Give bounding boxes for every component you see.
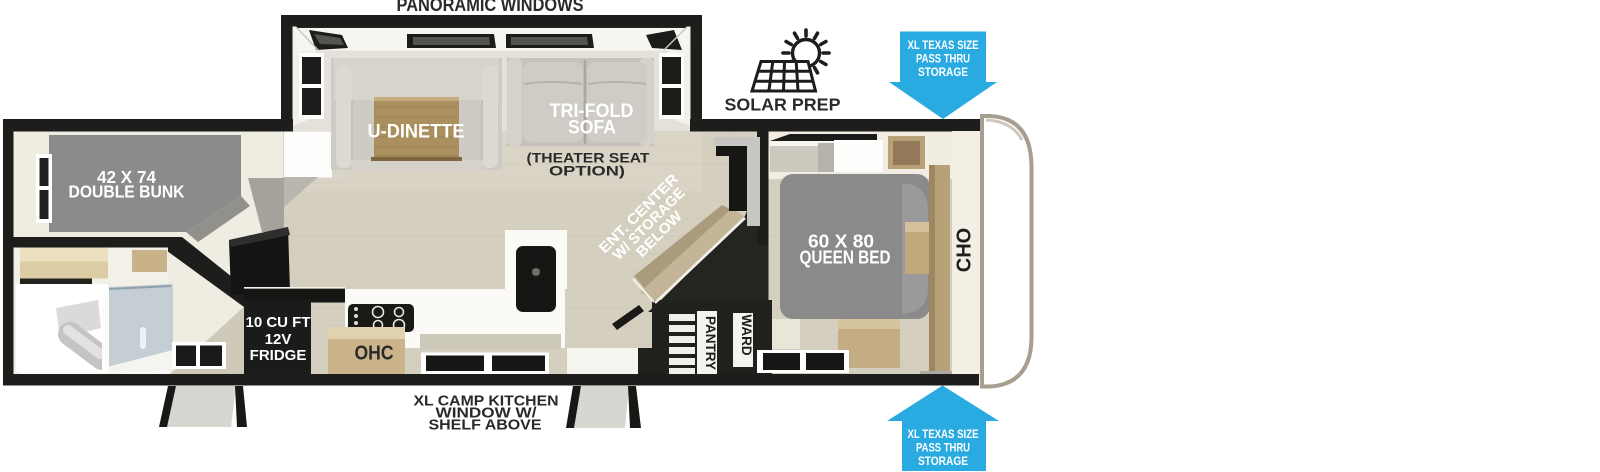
svg-text:STORAGE: STORAGE: [918, 67, 968, 79]
svg-text:PANORAMIC WINDOWS: PANORAMIC WINDOWS: [397, 0, 584, 15]
svg-text:10 CU FT: 10 CU FT: [245, 314, 310, 331]
svg-text:WARD: WARD: [739, 314, 754, 355]
svg-text:SOFA: SOFA: [568, 118, 616, 139]
svg-text:OHC: OHC: [355, 343, 394, 365]
svg-text:FRIDGE: FRIDGE: [250, 347, 307, 364]
svg-text:STORAGE: STORAGE: [918, 456, 968, 468]
svg-text:XL TEXAS SIZE: XL TEXAS SIZE: [908, 429, 979, 441]
svg-text:PASS THRU: PASS THRU: [916, 443, 970, 455]
svg-text:CHO: CHO: [954, 228, 976, 272]
svg-text:12V: 12V: [265, 331, 292, 348]
svg-text:DOUBLE BUNK: DOUBLE BUNK: [69, 182, 185, 202]
svg-text:U-DINETTE: U-DINETTE: [368, 122, 465, 143]
svg-text:SOLAR PREP: SOLAR PREP: [725, 95, 841, 115]
svg-text:OPTION): OPTION): [549, 163, 625, 179]
svg-text:PASS THRU: PASS THRU: [916, 54, 970, 66]
svg-text:SHELF ABOVE: SHELF ABOVE: [429, 418, 542, 434]
svg-text:PANTRY: PANTRY: [703, 316, 718, 370]
svg-text:XL TEXAS SIZE: XL TEXAS SIZE: [908, 40, 979, 52]
svg-text:QUEEN BED: QUEEN BED: [800, 248, 891, 268]
